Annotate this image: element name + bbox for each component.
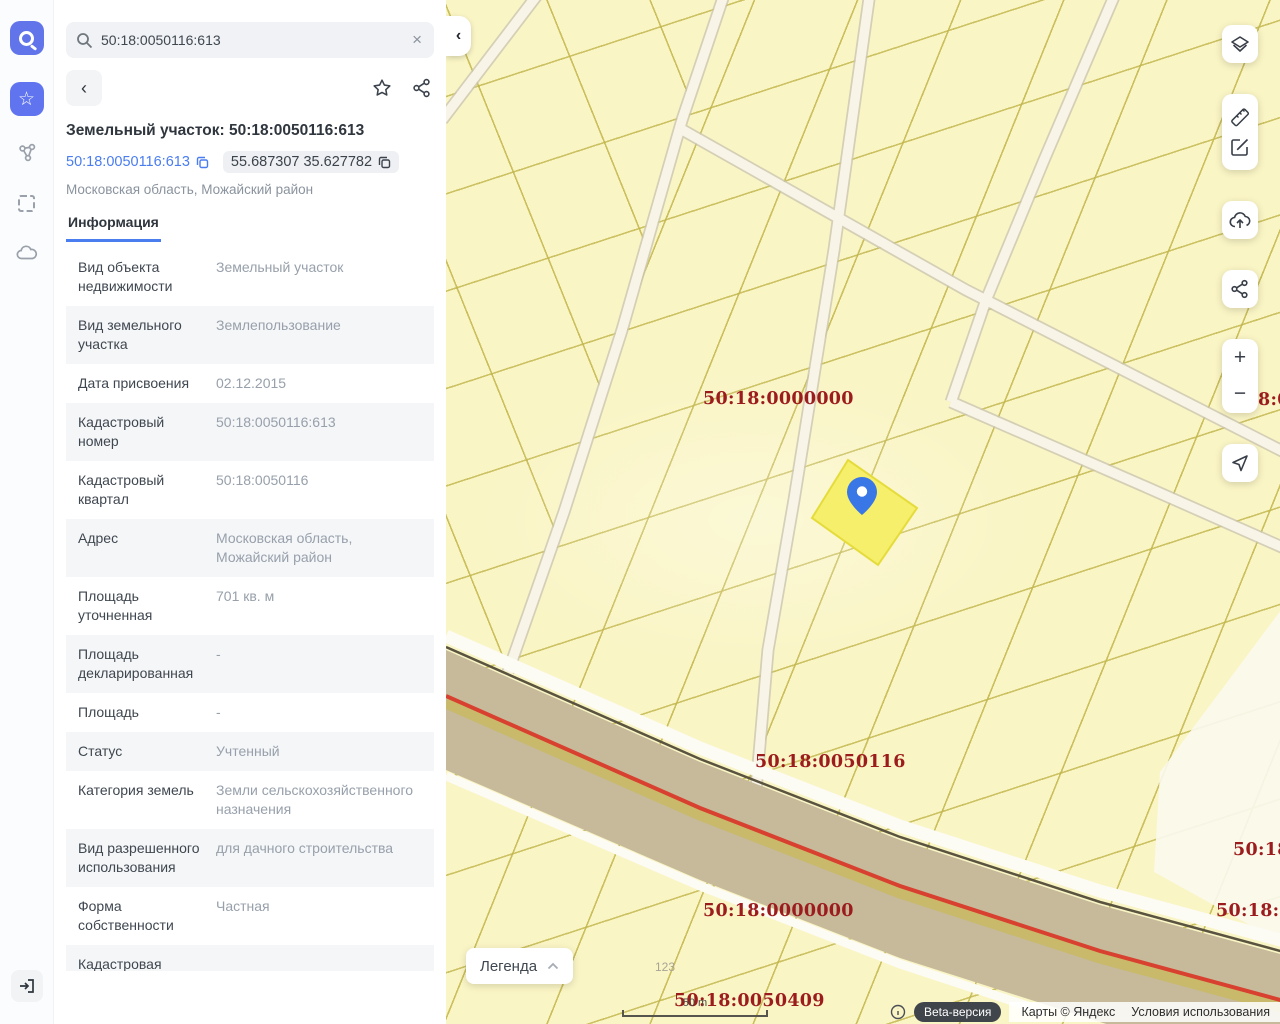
scale-label: 50 m xyxy=(622,997,768,1009)
app-rail: ☆ xyxy=(0,0,54,1024)
navigation-arrow-icon xyxy=(1230,453,1250,473)
star-icon: ☆ xyxy=(18,88,35,111)
map-attribution: Beta-версия Карты © Яндекс Условия испол… xyxy=(890,1002,1280,1022)
object-panel: × ‹ Земельный участок: 50:18:0050116:613… xyxy=(54,0,446,1024)
polygon-nodes-icon xyxy=(15,141,39,165)
search-icon xyxy=(76,32,93,49)
sidebar-item-cloud[interactable] xyxy=(10,240,44,266)
unzoned-area xyxy=(1154,606,1280,944)
object-address: Московская область, Можайский район xyxy=(66,182,434,197)
sign-in-icon xyxy=(18,977,36,995)
edit-icon xyxy=(1229,136,1251,158)
upload-button[interactable] xyxy=(1222,201,1258,239)
table-row: Форма собственностиЧастная xyxy=(66,887,434,945)
table-row: Вид объекта недвижимостиЗемельный участо… xyxy=(66,248,434,306)
attributes-table: Вид объекта недвижимостиЗемельный участо… xyxy=(66,248,434,971)
terms-link[interactable]: Условия использования xyxy=(1131,1005,1270,1019)
info-icon[interactable] xyxy=(890,1004,906,1020)
table-row: Кадастровый квартал50:18:0050116 xyxy=(66,461,434,519)
cadastre-label: 50:18:0050116 xyxy=(755,752,906,772)
cloud-icon xyxy=(15,243,39,263)
coordinates-chip[interactable]: 55.687307 35.627782 xyxy=(223,151,399,173)
layers-button[interactable] xyxy=(1222,25,1258,63)
map-canvas[interactable]: 50:18:0000000 50:18:0050116 50:18:000000… xyxy=(446,0,1280,1024)
search-input[interactable] xyxy=(101,32,410,48)
map-copyright[interactable]: Карты © Яндекс xyxy=(1021,1005,1115,1019)
cadastre-label: 50:18:0000000 xyxy=(703,389,854,409)
share-button[interactable] xyxy=(410,76,434,100)
copy-icon[interactable] xyxy=(196,156,209,169)
cadastral-number-link[interactable]: 50:18:0050116:613 xyxy=(66,154,209,170)
table-row: Категория земельЗемли сельскохозяйственн… xyxy=(66,771,434,829)
table-row: Площадь- xyxy=(66,693,434,732)
zoom-controls: + − xyxy=(1222,339,1258,413)
copy-icon[interactable] xyxy=(378,156,391,169)
legend-button[interactable]: Легенда xyxy=(466,948,573,984)
table-row: Кадастровый номер50:18:0050116:613 xyxy=(66,403,434,461)
dashed-square-icon xyxy=(18,195,35,212)
sidebar-item-polygon-tool[interactable] xyxy=(10,140,44,166)
share-icon xyxy=(1230,279,1250,299)
search-bar[interactable]: × xyxy=(66,22,434,58)
chevron-up-icon xyxy=(547,962,559,970)
scale-bar: 50 m xyxy=(622,997,768,1017)
table-row: Площадь уточненная701 кв. м xyxy=(66,577,434,635)
edit-button[interactable] xyxy=(1229,136,1251,158)
locate-button[interactable] xyxy=(1222,444,1258,482)
ruler-button[interactable] xyxy=(1229,106,1251,128)
sidebar-item-favorites[interactable]: ☆ xyxy=(10,82,44,116)
app-logo-icon xyxy=(19,31,34,46)
map-vector-layer xyxy=(446,0,1280,1024)
zoom-out-button[interactable]: − xyxy=(1222,376,1258,412)
cadastre-label: 50:18:0 xyxy=(1216,901,1280,921)
table-row: Дата присвоения02.12.2015 xyxy=(66,364,434,403)
clear-search-icon[interactable]: × xyxy=(410,30,424,50)
cloud-upload-icon xyxy=(1228,210,1252,230)
parcel-number-label: 123 xyxy=(655,960,675,974)
tab-information[interactable]: Информация xyxy=(66,214,161,242)
ruler-icon xyxy=(1229,106,1251,128)
map-share-button[interactable] xyxy=(1222,270,1258,308)
back-button[interactable]: ‹ xyxy=(66,70,102,106)
collapse-panel-button[interactable]: ‹ xyxy=(446,16,471,56)
share-icon xyxy=(412,78,432,98)
table-row: СтатусУчтенный xyxy=(66,732,434,771)
road-fills xyxy=(446,0,1280,790)
layers-icon xyxy=(1229,34,1251,54)
table-row: Вид разрешенного использованиядля дачног… xyxy=(66,829,434,887)
measure-edit-group xyxy=(1222,94,1258,170)
star-outline-icon xyxy=(371,77,393,99)
sign-in-button[interactable] xyxy=(11,970,43,1002)
table-row: Кадастровая xyxy=(66,945,434,971)
cadastre-label: 50:18:0000000 xyxy=(703,901,854,921)
table-row: Вид земельного участкаЗемлепользование xyxy=(66,306,434,364)
table-row: АдресМосковская область, Можайский район xyxy=(66,519,434,577)
app-logo[interactable] xyxy=(10,21,44,55)
table-row: Площадь декларированная- xyxy=(66,635,434,693)
zoom-in-button[interactable]: + xyxy=(1222,340,1258,376)
sidebar-item-area-select[interactable] xyxy=(10,190,44,216)
cadastre-label: 8:0 xyxy=(1258,390,1280,410)
page-title: Земельный участок: 50:18:0050116:613 xyxy=(66,122,434,140)
road-casings xyxy=(446,0,1280,790)
beta-badge: Beta-версия xyxy=(914,1002,1001,1022)
favorite-button[interactable] xyxy=(370,76,394,100)
cadastre-label: 50:18 xyxy=(1233,840,1280,860)
map-toolbar: + − xyxy=(1222,25,1258,482)
